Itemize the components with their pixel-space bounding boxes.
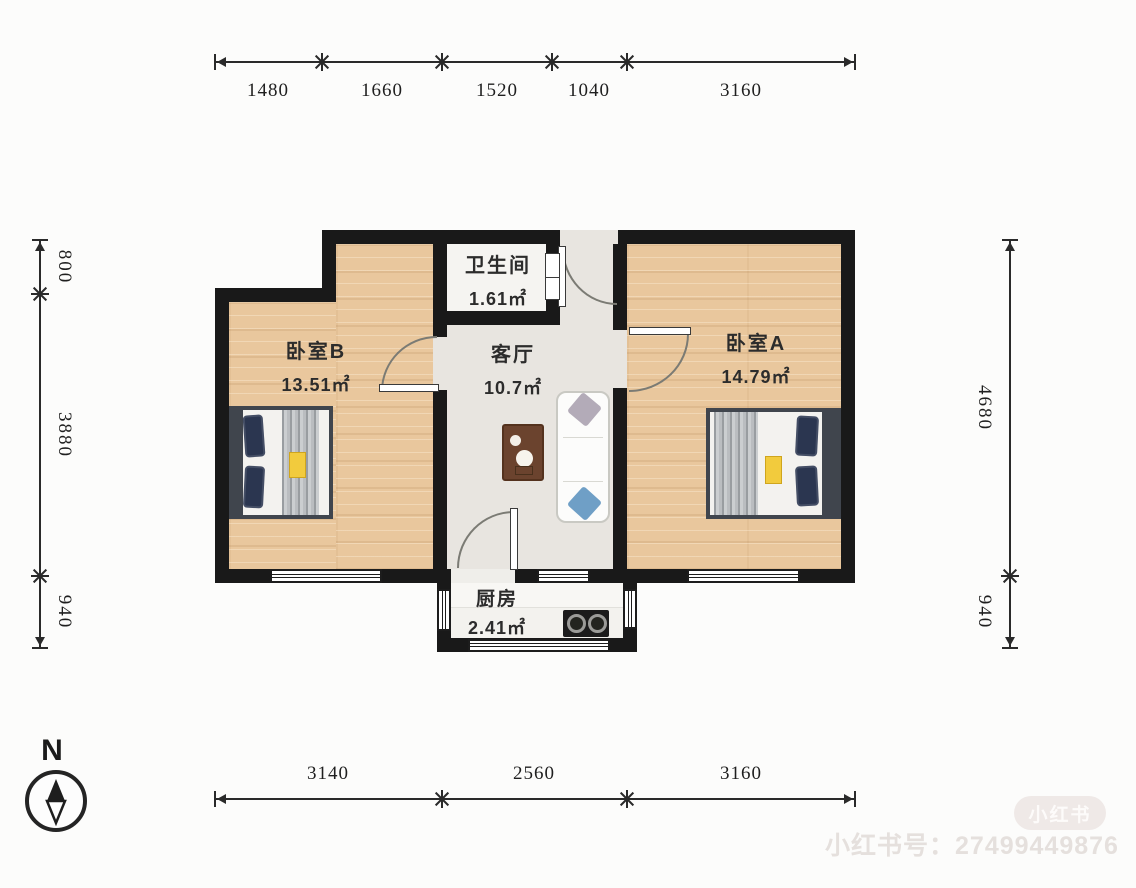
sofa-pillow [567,486,602,521]
wall [433,390,447,569]
entry-opening [560,230,618,244]
room-label-bathroom: 卫生间 1.61㎡ [465,249,531,311]
north-label: N [41,734,63,768]
door-leaf-bedroom-a [629,327,691,335]
wall [215,569,270,583]
dimension-value: 940 [53,595,75,630]
dimension-value: 940 [973,595,995,630]
room-area: 2.41㎡ [468,614,526,640]
dimension-value: 3880 [53,412,75,458]
wall [433,311,560,325]
price-tag [289,452,306,478]
wall [215,288,229,583]
wall [515,569,537,583]
door-leaf-kitchen [510,508,518,570]
floor-plan-canvas: 卧室B 13.51㎡ 卫生间 1.61㎡ 客厅 10.7㎡ 卧室A 14.79㎡… [0,0,1136,888]
dimension-line-bottom [215,798,855,800]
door-leaf-bedroom-b [379,384,439,392]
floor-bedroom-a [627,244,841,569]
window [623,589,637,629]
north-arrow-icon [29,774,83,828]
wall [841,230,855,583]
window [468,639,610,652]
room-label-bedroom-a: 卧室A 14.79㎡ [721,327,790,389]
dimension-value: 1040 [568,80,610,102]
wall [800,569,855,583]
window [687,569,800,583]
room-name: 客厅 [484,338,542,367]
dimension-value: 3160 [720,763,762,785]
burner [588,614,607,633]
wall [590,569,687,583]
wall [215,288,336,302]
room-area: 10.7㎡ [484,374,542,400]
room-area: 14.79㎡ [721,363,790,389]
xiaohongshu-badge: 小红书 [1014,796,1106,830]
floor-bedroom-b [336,244,433,569]
sofa [556,391,610,523]
wall [618,230,855,244]
room-area: 1.61㎡ [465,285,531,311]
window [537,569,590,583]
pillow [243,466,265,509]
dimension-value: 1660 [361,80,403,102]
pillow [243,414,266,457]
blanket [714,412,758,515]
pillow [795,415,819,456]
room-name: 卧室B [281,335,350,364]
dimension-value: 1480 [247,80,289,102]
dimension-value: 1520 [476,80,518,102]
dimension-value: 800 [53,250,75,285]
bathroom-sliding-door [545,253,560,300]
window [270,569,382,583]
room-area: 13.51㎡ [281,371,350,397]
compass-icon [25,770,87,832]
dimension-value: 4680 [973,385,995,431]
room-label-bedroom-b: 卧室B 13.51㎡ [281,335,350,397]
room-name: 厨房 [468,584,526,611]
dimension-value: 3140 [307,763,349,785]
dimension-line-right [1009,240,1011,648]
coffee-table [502,424,544,481]
door-opening [451,569,515,583]
wall [613,388,627,569]
dimension-value: 3160 [720,80,762,102]
wall [322,230,560,244]
burner [567,614,586,633]
stove [563,610,609,637]
wall [382,569,451,583]
room-label-living: 客厅 10.7㎡ [484,338,542,400]
price-tag [765,456,782,484]
pillow [795,465,819,506]
room-name: 卧室A [721,327,790,356]
window [437,589,451,631]
bed-bedroom-a [706,408,841,519]
dimension-line-top [215,61,855,63]
bed-bedroom-b [227,406,333,519]
room-label-kitchen: 厨房 2.41㎡ [468,584,526,640]
sofa-pillow [567,392,602,427]
room-name: 卫生间 [465,249,531,278]
door-opening [613,330,627,388]
dimension-line-left [39,240,41,648]
watermark-account: 小红书号：27499449876 [825,826,1119,862]
dimension-value: 2560 [513,763,555,785]
